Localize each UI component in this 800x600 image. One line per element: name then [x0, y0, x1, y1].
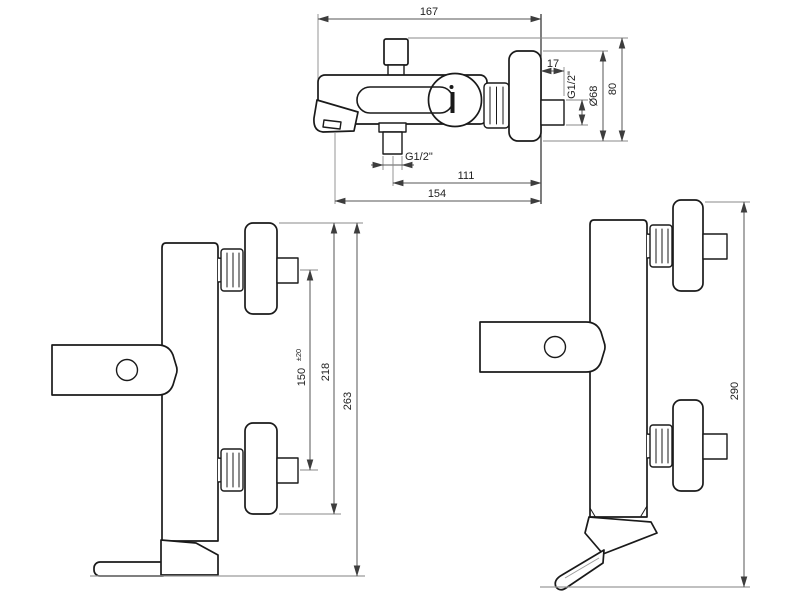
- technical-drawing-canvas: 167 17 G1/2" Ø68 80: [0, 0, 800, 600]
- straight-spout-top-view: [94, 562, 168, 576]
- front-view-angled-spout: 290: [480, 200, 750, 590]
- dim-label-stub-length: 17: [547, 58, 559, 70]
- handle-disc: [429, 74, 482, 127]
- inlet-nut-top: [221, 249, 243, 291]
- dim-label-overall-height-shower: 290: [729, 382, 741, 400]
- spout-base-wedge: [161, 540, 218, 575]
- side-view: 167 17 G1/2" Ø68 80: [314, 6, 628, 204]
- dim-label-escutcheon-span: 218: [320, 363, 332, 381]
- inlet-escutcheon-top-2: [673, 200, 703, 291]
- inlet-escutcheon-bottom-2: [673, 400, 703, 491]
- handle-hole: [117, 360, 138, 381]
- inlet-escutcheon-top: [245, 223, 277, 314]
- dim-label-inlet-centres-tolerance: ±20: [294, 349, 303, 361]
- lever-handle-top-view: [52, 345, 177, 395]
- wall-connection-stub: [541, 100, 564, 125]
- handle-hole-2: [545, 337, 566, 358]
- inlet-stub-top-2: [703, 234, 727, 259]
- spout-base-wedge-2: [585, 517, 657, 554]
- dim-label-inlet-thread: G1/2": [566, 71, 578, 99]
- dim-label-inlet-centres: 150: [296, 368, 308, 386]
- brand-logo-dot-icon: [450, 85, 454, 89]
- inlet-stub-top: [277, 258, 298, 283]
- mixer-body-front-2: [590, 220, 647, 517]
- shower-outlet-collar: [379, 123, 406, 132]
- brand-logo-bar-icon: [451, 92, 455, 113]
- dim-label-overall-depth: 167: [420, 6, 438, 18]
- inlet-stub-bottom-2: [703, 434, 727, 459]
- dim-label-outlet-thread: G1/2": [405, 151, 433, 163]
- lever-handle-top-view-2: [480, 322, 605, 372]
- inlet-stub-bottom: [277, 458, 298, 483]
- dim-label-body-height: 80: [607, 83, 619, 95]
- dim-label-overall-height-bath: 263: [342, 392, 354, 410]
- inlet-escutcheon-bottom: [245, 423, 277, 514]
- shower-outlet-pipe: [383, 132, 402, 154]
- diverter-knob: [384, 39, 408, 65]
- dim-label-outlet-to-wall: 111: [458, 170, 475, 182]
- spout-aerator: [323, 120, 341, 129]
- drawing-sheet: 167 17 G1/2" Ø68 80: [0, 0, 800, 600]
- inlet-nut-top-2: [650, 225, 672, 267]
- mixer-body-front: [162, 243, 218, 541]
- wall-escutcheon-side: [509, 51, 541, 141]
- front-view-bath-spout: 150 ±20 218 263: [52, 223, 365, 576]
- dim-label-escutcheon-diameter: Ø68: [588, 86, 600, 107]
- inlet-nut-bottom: [221, 449, 243, 491]
- inlet-nut-bottom-2: [650, 425, 672, 467]
- dim-label-spout-to-wall: 154: [428, 188, 446, 200]
